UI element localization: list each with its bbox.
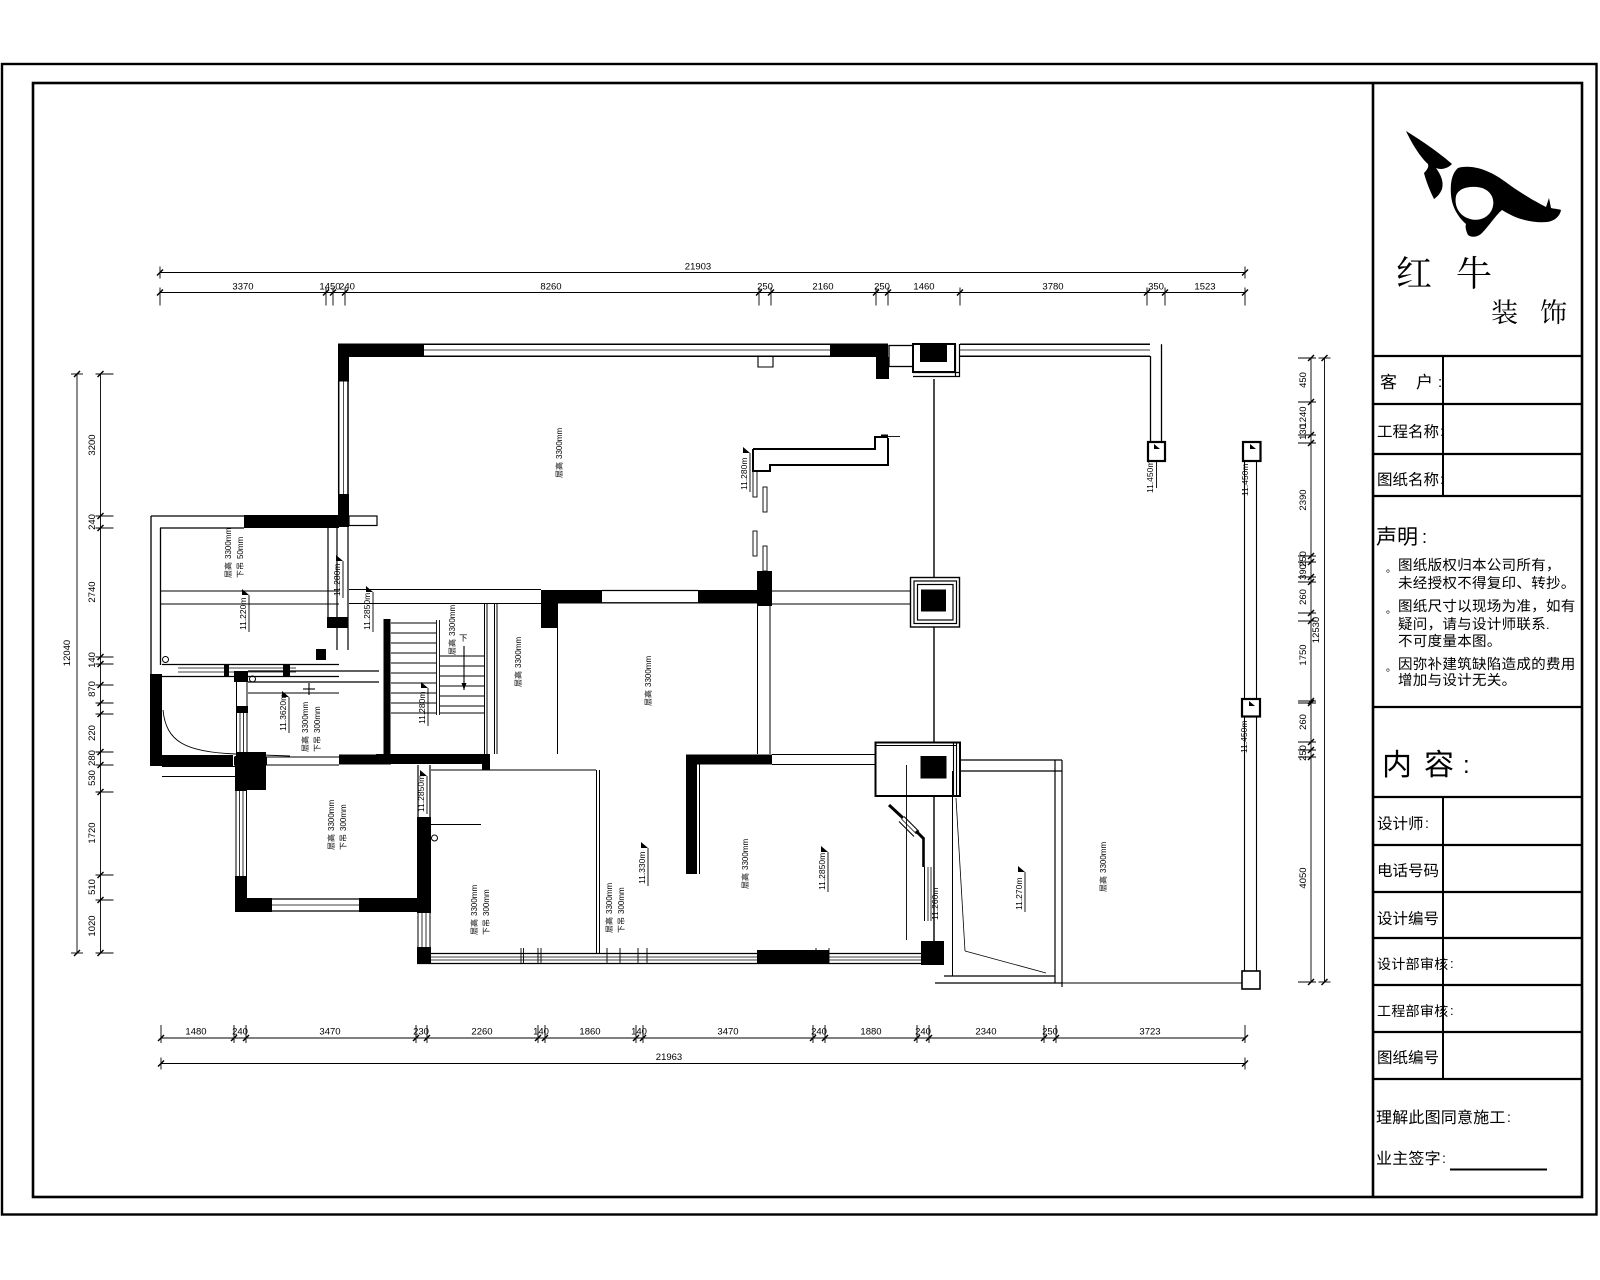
svg-text:11.260m: 11.260m [930,888,940,920]
svg-text::: : [1422,527,1427,547]
svg-text:2260: 2260 [471,1027,492,1038]
svg-text:12530: 12530 [1311,617,1322,643]
svg-text:3300mm: 3300mm [741,839,750,870]
svg-text:230: 230 [413,1027,429,1038]
svg-text:11.450m: 11.450m [1240,464,1250,496]
svg-text:240: 240 [811,1027,827,1038]
svg-text:11.450m: 11.450m [1239,721,1249,753]
svg-text:11.2850m: 11.2850m [817,853,827,890]
svg-text:250: 250 [874,282,890,293]
svg-text:2160: 2160 [812,282,833,293]
svg-text:2740: 2740 [87,581,98,602]
svg-text:250: 250 [1042,1027,1058,1038]
svg-text:300mm: 300mm [482,889,491,916]
svg-text:3300mm: 3300mm [514,637,523,668]
svg-text:350: 350 [1148,282,1164,293]
svg-text:1480: 1480 [185,1027,206,1038]
svg-text:1750: 1750 [1298,644,1309,665]
svg-text:530: 530 [87,770,98,786]
svg-text:4050: 4050 [1298,867,1309,888]
svg-text::: : [1450,1003,1454,1018]
svg-text:1720: 1720 [87,822,98,843]
svg-text:300mm: 300mm [313,706,322,733]
svg-text:1460: 1460 [913,282,934,293]
svg-text:450: 450 [1298,372,1309,388]
svg-text:2340: 2340 [975,1027,996,1038]
svg-text:3470: 3470 [319,1027,340,1038]
svg-text:50mm: 50mm [236,536,245,559]
svg-text:11.2850m: 11.2850m [362,593,372,630]
svg-text:3300mm: 3300mm [301,702,310,733]
svg-text:510: 510 [87,879,98,895]
svg-text:3200: 3200 [87,434,98,455]
svg-text:3470: 3470 [717,1027,738,1038]
svg-text:11.280m: 11.280m [739,458,749,490]
svg-text:3723: 3723 [1139,1027,1160,1038]
svg-text:3300mm: 3300mm [448,605,457,636]
svg-text:1860: 1860 [579,1027,600,1038]
svg-text:240: 240 [232,1027,248,1038]
svg-text:3300mm: 3300mm [605,883,614,914]
svg-text::: : [1463,752,1470,779]
svg-text::: : [1440,423,1444,439]
svg-text:.: . [1546,617,1550,632]
svg-text:8260: 8260 [540,282,561,293]
svg-text:3300mm: 3300mm [1099,842,1108,873]
svg-text:21963: 21963 [656,1052,682,1063]
svg-text:260: 260 [1298,714,1309,730]
svg-text:3300mm: 3300mm [555,428,564,459]
svg-text:12040: 12040 [62,640,73,666]
svg-text:390: 390 [1298,564,1309,580]
svg-text:140: 140 [631,1027,647,1038]
svg-text::: : [1438,374,1442,391]
svg-text:3300mm: 3300mm [644,656,653,687]
svg-text:240: 240 [339,282,355,293]
svg-text:300mm: 300mm [339,804,348,831]
svg-text:870: 870 [87,681,98,697]
svg-text:3300mm: 3300mm [327,800,336,831]
svg-text:140: 140 [533,1027,549,1038]
svg-text::: : [1440,471,1444,487]
svg-text:2390: 2390 [1298,489,1309,510]
svg-text::: : [1450,956,1454,971]
svg-text:11.270m: 11.270m [1014,878,1024,910]
svg-text:3300mm: 3300mm [224,528,233,559]
svg-text:11.450m: 11.450m [1145,461,1155,493]
svg-text:3300mm: 3300mm [470,885,479,916]
svg-text:1450: 1450 [319,282,340,293]
svg-text:250: 250 [1298,745,1309,761]
svg-text:280: 280 [87,750,98,766]
svg-text:240: 240 [915,1027,931,1038]
svg-text::: : [1425,815,1429,831]
svg-text:250: 250 [757,282,773,293]
svg-text:240: 240 [87,514,98,530]
svg-text::: : [1442,1150,1446,1166]
svg-text:130: 130 [1298,424,1309,440]
svg-text:260: 260 [1298,589,1309,605]
svg-text:3780: 3780 [1042,282,1063,293]
svg-text:1523: 1523 [1194,282,1215,293]
svg-text:11.280m: 11.280m [417,692,427,724]
svg-text:11.2850m: 11.2850m [416,775,426,812]
svg-text:11.330m: 11.330m [637,852,647,884]
svg-text:1020: 1020 [87,915,98,936]
svg-text:11.280m: 11.280m [332,564,342,596]
svg-text:11.220m: 11.220m [238,598,248,630]
svg-text:140: 140 [87,652,98,668]
svg-text:1880: 1880 [860,1027,881,1038]
svg-text::: : [1507,1109,1511,1125]
svg-text:3370: 3370 [232,282,253,293]
svg-text:11.3620m: 11.3620m [278,694,288,731]
svg-text:220: 220 [87,725,98,741]
svg-text:21903: 21903 [685,262,711,273]
svg-text:300mm: 300mm [617,887,626,914]
